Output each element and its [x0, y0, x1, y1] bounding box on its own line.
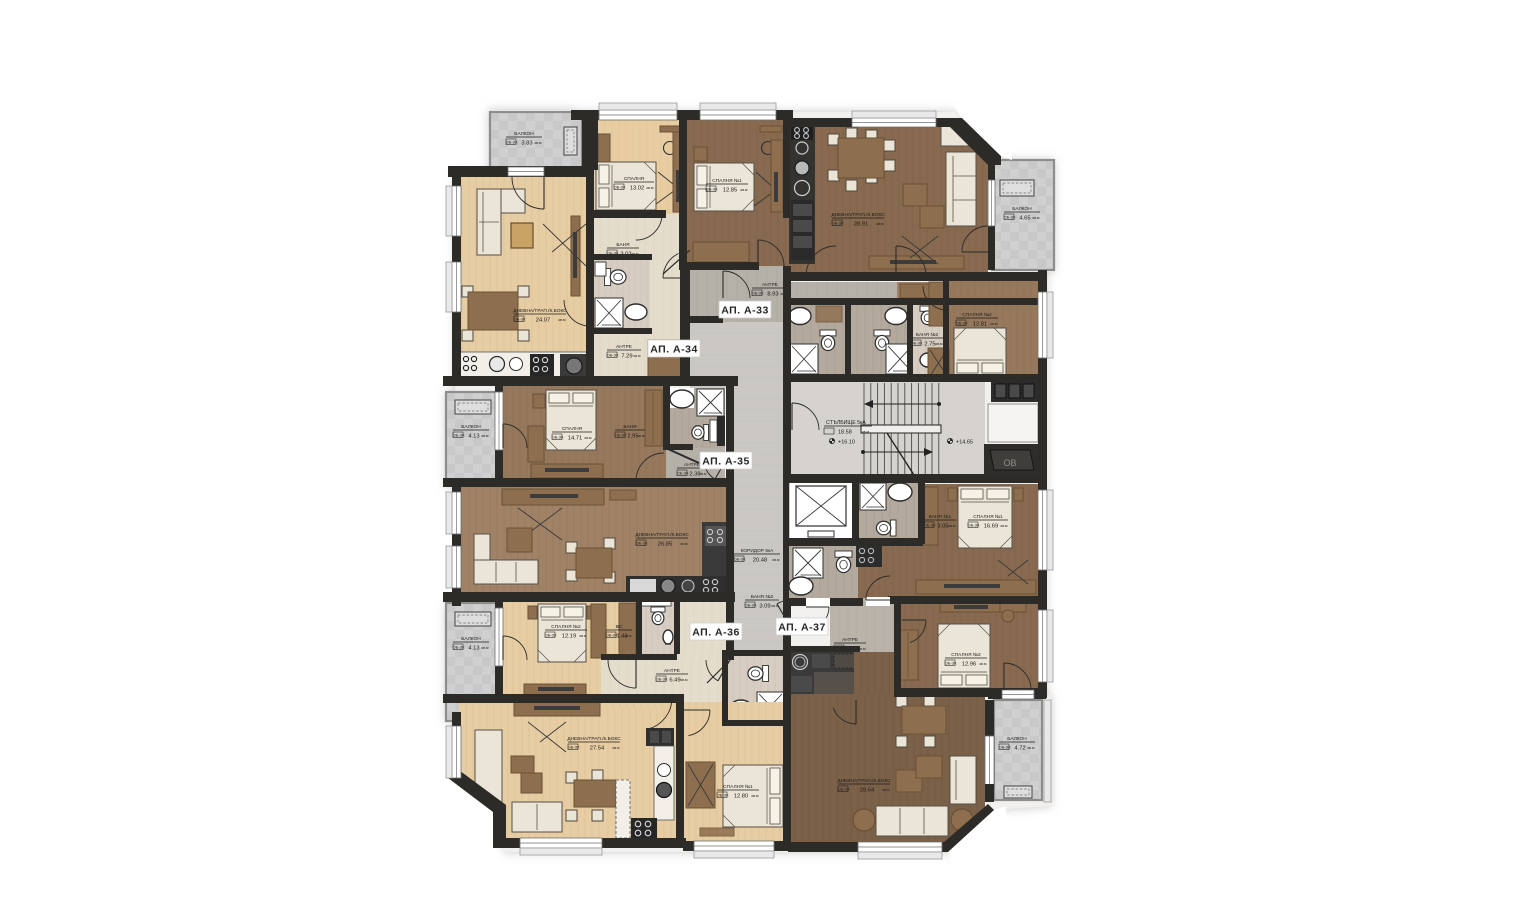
svg-text:СПАЛНЯ №1: СПАЛНЯ №1	[723, 784, 753, 790]
svg-text:ДНЕВНА/ТРАП./К.БОКС: ДНЕВНА/ТРАП./К.БОКС	[831, 212, 885, 218]
svg-text:18.58: 18.58	[838, 430, 852, 436]
svg-text:БАЛКОН: БАЛКОН	[461, 424, 481, 430]
svg-text:12.85: 12.85	[723, 187, 738, 193]
svg-text:4.13: 4.13	[468, 433, 479, 439]
svg-text:ОБ-ЗК: ОБ-ЗК	[999, 745, 1011, 750]
svg-text:СПАЛНЯ №2: СПАЛНЯ №2	[962, 312, 992, 318]
svg-text:кв.м: кв.м	[936, 342, 943, 346]
svg-text:ОБ-ЗК: ОБ-ЗК	[734, 557, 746, 562]
svg-text:28.91: 28.91	[854, 221, 869, 227]
svg-text:КОРИДОР 5кА: КОРИДОР 5кА	[741, 548, 774, 554]
svg-text:кв.м: кв.м	[1028, 746, 1035, 750]
svg-text:2.75: 2.75	[924, 341, 935, 347]
svg-text:кв.м: кв.м	[700, 472, 707, 476]
svg-text:ОБ-ЗК: ОБ-ЗК	[506, 140, 518, 145]
svg-text:ОБ-ЗК: ОБ-ЗК	[607, 353, 619, 358]
svg-text:БАЛКОН: БАЛКОН	[1012, 206, 1032, 212]
svg-text:кв.м: кв.м	[949, 524, 956, 528]
svg-text:16.69: 16.69	[984, 523, 999, 529]
svg-text:ДНЕВНА/ТРАП./К.БОКС: ДНЕВНА/ТРАП./К.БОКС	[567, 736, 621, 742]
svg-text:кв.м: кв.м	[741, 188, 748, 192]
svg-text:БАЛКОН: БАЛКОН	[461, 636, 481, 642]
svg-text:кв.м: кв.м	[580, 634, 587, 638]
svg-text:кв.м: кв.м	[862, 430, 869, 434]
svg-text:7.29: 7.29	[621, 353, 632, 359]
svg-text:6.49: 6.49	[669, 677, 680, 683]
svg-text:ОБ-ЗК: ОБ-ЗК	[945, 661, 957, 666]
svg-text:ОБ-ЗК: ОБ-ЗК	[1004, 215, 1016, 220]
svg-text:4.72: 4.72	[1014, 745, 1025, 751]
svg-text:+16.10: +16.10	[838, 440, 855, 446]
svg-text:ДНЕВНА/ТРАП./К.БОКС: ДНЕВНА/ТРАП./К.БОКС	[635, 532, 689, 538]
svg-text:кв.м: кв.м	[559, 318, 566, 322]
svg-text:кв.м: кв.м	[1001, 524, 1008, 528]
svg-text:12.19: 12.19	[562, 633, 577, 639]
svg-text:кв.м: кв.м	[980, 662, 987, 666]
svg-text:ОБ-ЗК: ОБ-ЗК	[656, 677, 668, 682]
svg-text:кв.м: кв.м	[991, 322, 998, 326]
svg-text:ДНЕВНА/ТРАП./К.БОКС: ДНЕВНА/ТРАП./К.БОКС	[513, 308, 567, 314]
svg-text:ОБ-ЗК: ОБ-ЗК	[832, 221, 844, 226]
svg-text:8.93: 8.93	[767, 291, 778, 297]
svg-text:3.09: 3.09	[759, 603, 770, 609]
svg-text:ОБ-ЗК: ОБ-ЗК	[838, 787, 850, 792]
svg-text:ОБ-ЗК: ОБ-ЗК	[968, 523, 980, 528]
svg-text:ОБ-ЗК: ОБ-ЗК	[677, 471, 689, 476]
svg-text:СТЪЛБИЩЕ 5кА: СТЪЛБИЩЕ 5кА	[826, 420, 866, 426]
svg-text:4.13: 4.13	[468, 645, 479, 651]
svg-text:БАЛКОН: БАЛКОН	[1007, 736, 1027, 742]
svg-text:4.65: 4.65	[1019, 215, 1030, 221]
svg-text:СПАЛНЯ: СПАЛНЯ	[562, 426, 583, 432]
svg-text:кв.м: кв.м	[634, 354, 641, 358]
svg-text:АНТРЕ: АНТРЕ	[664, 668, 680, 674]
svg-text:кв.м: кв.м	[585, 436, 592, 440]
svg-text:ОБ-ЗК: ОБ-ЗК	[717, 793, 729, 798]
svg-text:ОБ-ЗК: ОБ-ЗК	[745, 603, 757, 608]
svg-text:БАНЯ №2: БАНЯ №2	[916, 332, 939, 338]
svg-text:24.07: 24.07	[536, 317, 551, 323]
svg-text:ОБ-ЗК: ОБ-ЗК	[453, 433, 465, 438]
svg-text:кв.м: кв.м	[681, 678, 688, 682]
svg-text:ОБ-ЗК: ОБ-ЗК	[453, 645, 465, 650]
svg-text:ОБ-ЗК: ОБ-ЗК	[615, 433, 627, 438]
svg-text:кв.м: кв.м	[647, 186, 654, 190]
svg-text:кв.м: кв.м	[1033, 216, 1040, 220]
svg-text:АП. А-37: АП. А-37	[778, 622, 826, 634]
svg-text:АНТРЕ: АНТРЕ	[842, 637, 858, 643]
svg-text:ОБ-ЗК: ОБ-ЗК	[614, 185, 626, 190]
svg-text:ДНЕВНА/ТРАП./К.БОКС: ДНЕВНА/ТРАП./К.БОКС	[837, 778, 891, 784]
svg-text:кв.м: кв.м	[613, 746, 620, 750]
svg-text:АНТРЕ: АНТРЕ	[616, 344, 632, 350]
svg-text:3.83: 3.83	[521, 140, 532, 146]
svg-text:12.80: 12.80	[734, 793, 749, 799]
svg-text:БАНЯ №1: БАНЯ №1	[929, 514, 952, 520]
svg-text:ОБ-ЗК: ОБ-ЗК	[752, 291, 764, 296]
svg-text:ОБ-ЗК: ОБ-ЗК	[706, 187, 718, 192]
svg-text:кв.м: кв.м	[752, 794, 759, 798]
svg-text:ОБ-ЗК: ОБ-ЗК	[568, 745, 580, 750]
svg-text:СПАЛНЯ №1: СПАЛНЯ №1	[973, 514, 1003, 520]
svg-text:кв.м: кв.м	[773, 558, 780, 562]
svg-text:АП. А-35: АП. А-35	[702, 456, 750, 468]
svg-text:БАНЯ №2: БАНЯ №2	[751, 594, 774, 600]
svg-text:ОБ-ЗК: ОБ-ЗК	[636, 541, 648, 546]
svg-text:ОБ-ЗК: ОБ-ЗК	[924, 523, 936, 528]
svg-text:БАЛКОН: БАЛКОН	[514, 131, 534, 137]
svg-text:ОБ-ЗК: ОБ-ЗК	[552, 435, 564, 440]
svg-text:кв.м: кв.м	[535, 141, 542, 145]
svg-text:кв.м: кв.м	[681, 542, 688, 546]
svg-text:12.96: 12.96	[962, 661, 977, 667]
svg-text:кв.м: кв.м	[482, 434, 489, 438]
svg-text:26.85: 26.85	[658, 541, 673, 547]
svg-text:АП. А-33: АП. А-33	[721, 305, 769, 317]
svg-text:ОВ: ОВ	[1003, 458, 1016, 468]
svg-text:кв.м: кв.м	[877, 222, 884, 226]
svg-text:АП. А-36: АП. А-36	[692, 627, 740, 639]
svg-text:БАНЯ: БАНЯ	[616, 242, 630, 248]
svg-text:СПАЛНЯ: СПАЛНЯ	[624, 176, 645, 182]
svg-text:ВС: ВС	[616, 624, 623, 630]
svg-text:14.71: 14.71	[568, 435, 583, 441]
svg-text:ОБ-ЗК: ОБ-ЗК	[545, 633, 557, 638]
svg-text:13.02: 13.02	[630, 185, 645, 191]
svg-text:+14.65: +14.65	[956, 440, 973, 446]
svg-text:кв.м: кв.м	[482, 646, 489, 650]
svg-text:ОБ-ЗК: ОБ-ЗК	[956, 321, 968, 326]
svg-text:3.05: 3.05	[937, 523, 948, 529]
svg-text:АНТРЕ: АНТРЕ	[762, 282, 778, 288]
svg-text:СПАЛНЯ №1: СПАЛНЯ №1	[712, 178, 742, 184]
svg-text:АП. А-34: АП. А-34	[650, 344, 698, 356]
svg-text:27.54: 27.54	[590, 745, 605, 751]
svg-text:ОБ-ЗК: ОБ-ЗК	[514, 317, 526, 322]
svg-text:кв.м: кв.м	[625, 634, 632, 638]
svg-text:28.64: 28.64	[860, 787, 875, 793]
svg-text:кв.м: кв.м	[883, 788, 890, 792]
svg-text:20.48: 20.48	[753, 557, 768, 563]
svg-text:кв.м: кв.м	[638, 434, 645, 438]
svg-text:12.81: 12.81	[973, 321, 988, 327]
svg-text:СПАЛНЯ №2: СПАЛНЯ №2	[551, 624, 581, 630]
svg-text:СПАЛНЯ №2: СПАЛНЯ №2	[951, 652, 981, 658]
svg-text:БАНЯ: БАНЯ	[623, 424, 637, 430]
